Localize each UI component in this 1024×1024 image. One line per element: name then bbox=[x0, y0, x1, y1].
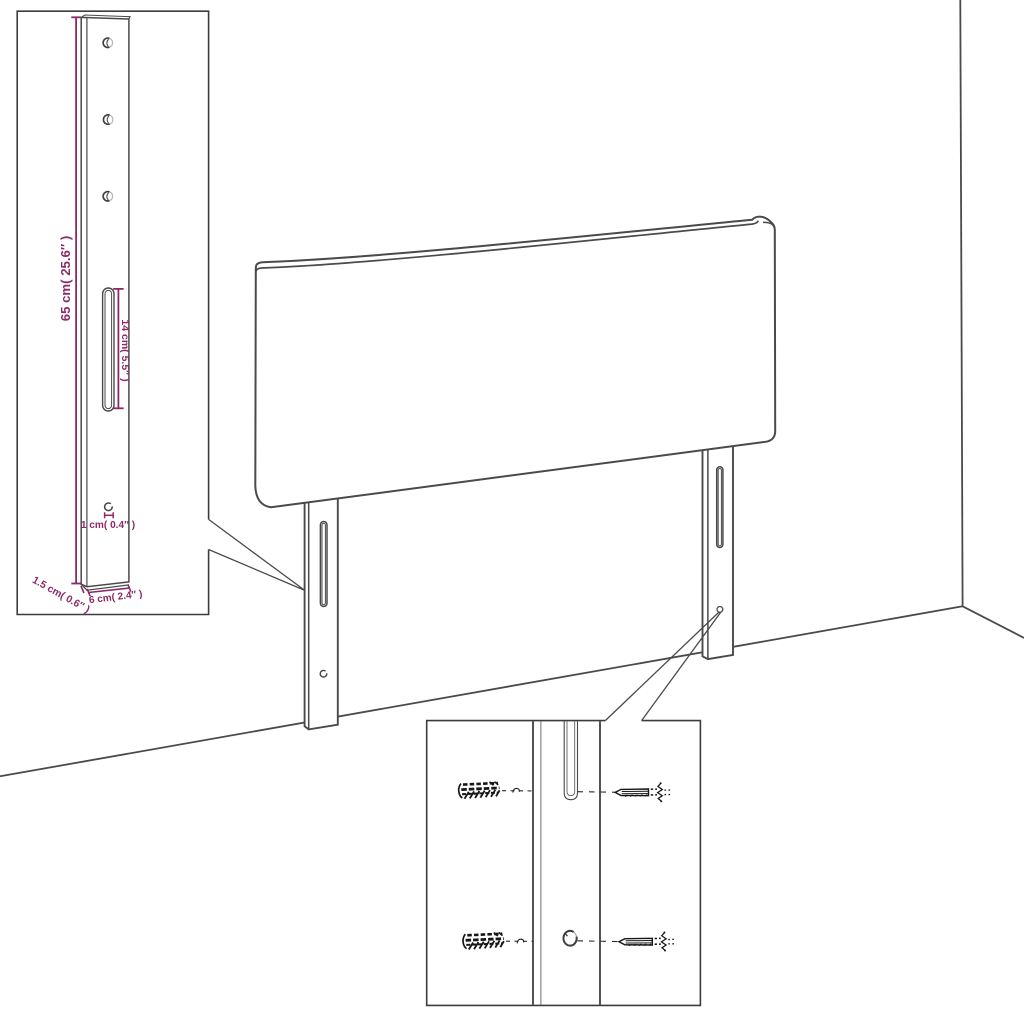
svg-text:14 cm( 5.5″ ): 14 cm( 5.5″ ) bbox=[119, 319, 131, 381]
svg-text:65 cm( 25.6″ ): 65 cm( 25.6″ ) bbox=[58, 236, 73, 322]
svg-text:1 cm( 0.4″ ): 1 cm( 0.4″ ) bbox=[81, 520, 135, 531]
